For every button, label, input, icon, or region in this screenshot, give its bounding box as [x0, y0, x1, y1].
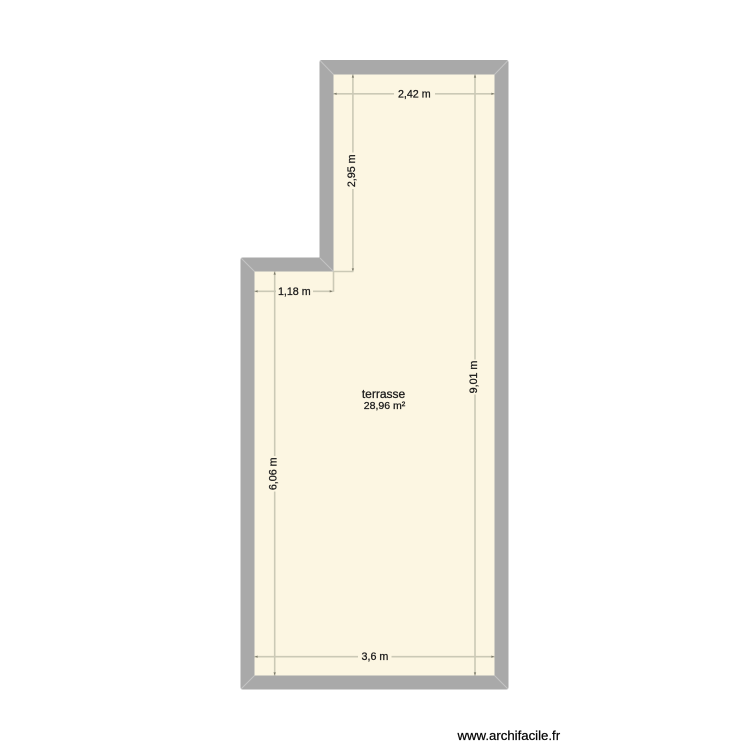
svg-text:9,01 m: 9,01 m — [468, 361, 480, 394]
svg-text:www.archifacile.fr: www.archifacile.fr — [457, 728, 561, 743]
svg-text:2,95 m: 2,95 m — [346, 154, 358, 187]
svg-text:terrasse: terrasse — [362, 387, 406, 401]
svg-text:3,6 m: 3,6 m — [362, 651, 389, 663]
svg-text:1,18 m: 1,18 m — [278, 286, 311, 298]
svg-text:6,06 m: 6,06 m — [268, 457, 280, 490]
svg-text:2,42 m: 2,42 m — [398, 88, 431, 100]
svg-text:28,96 m²: 28,96 m² — [364, 400, 406, 412]
